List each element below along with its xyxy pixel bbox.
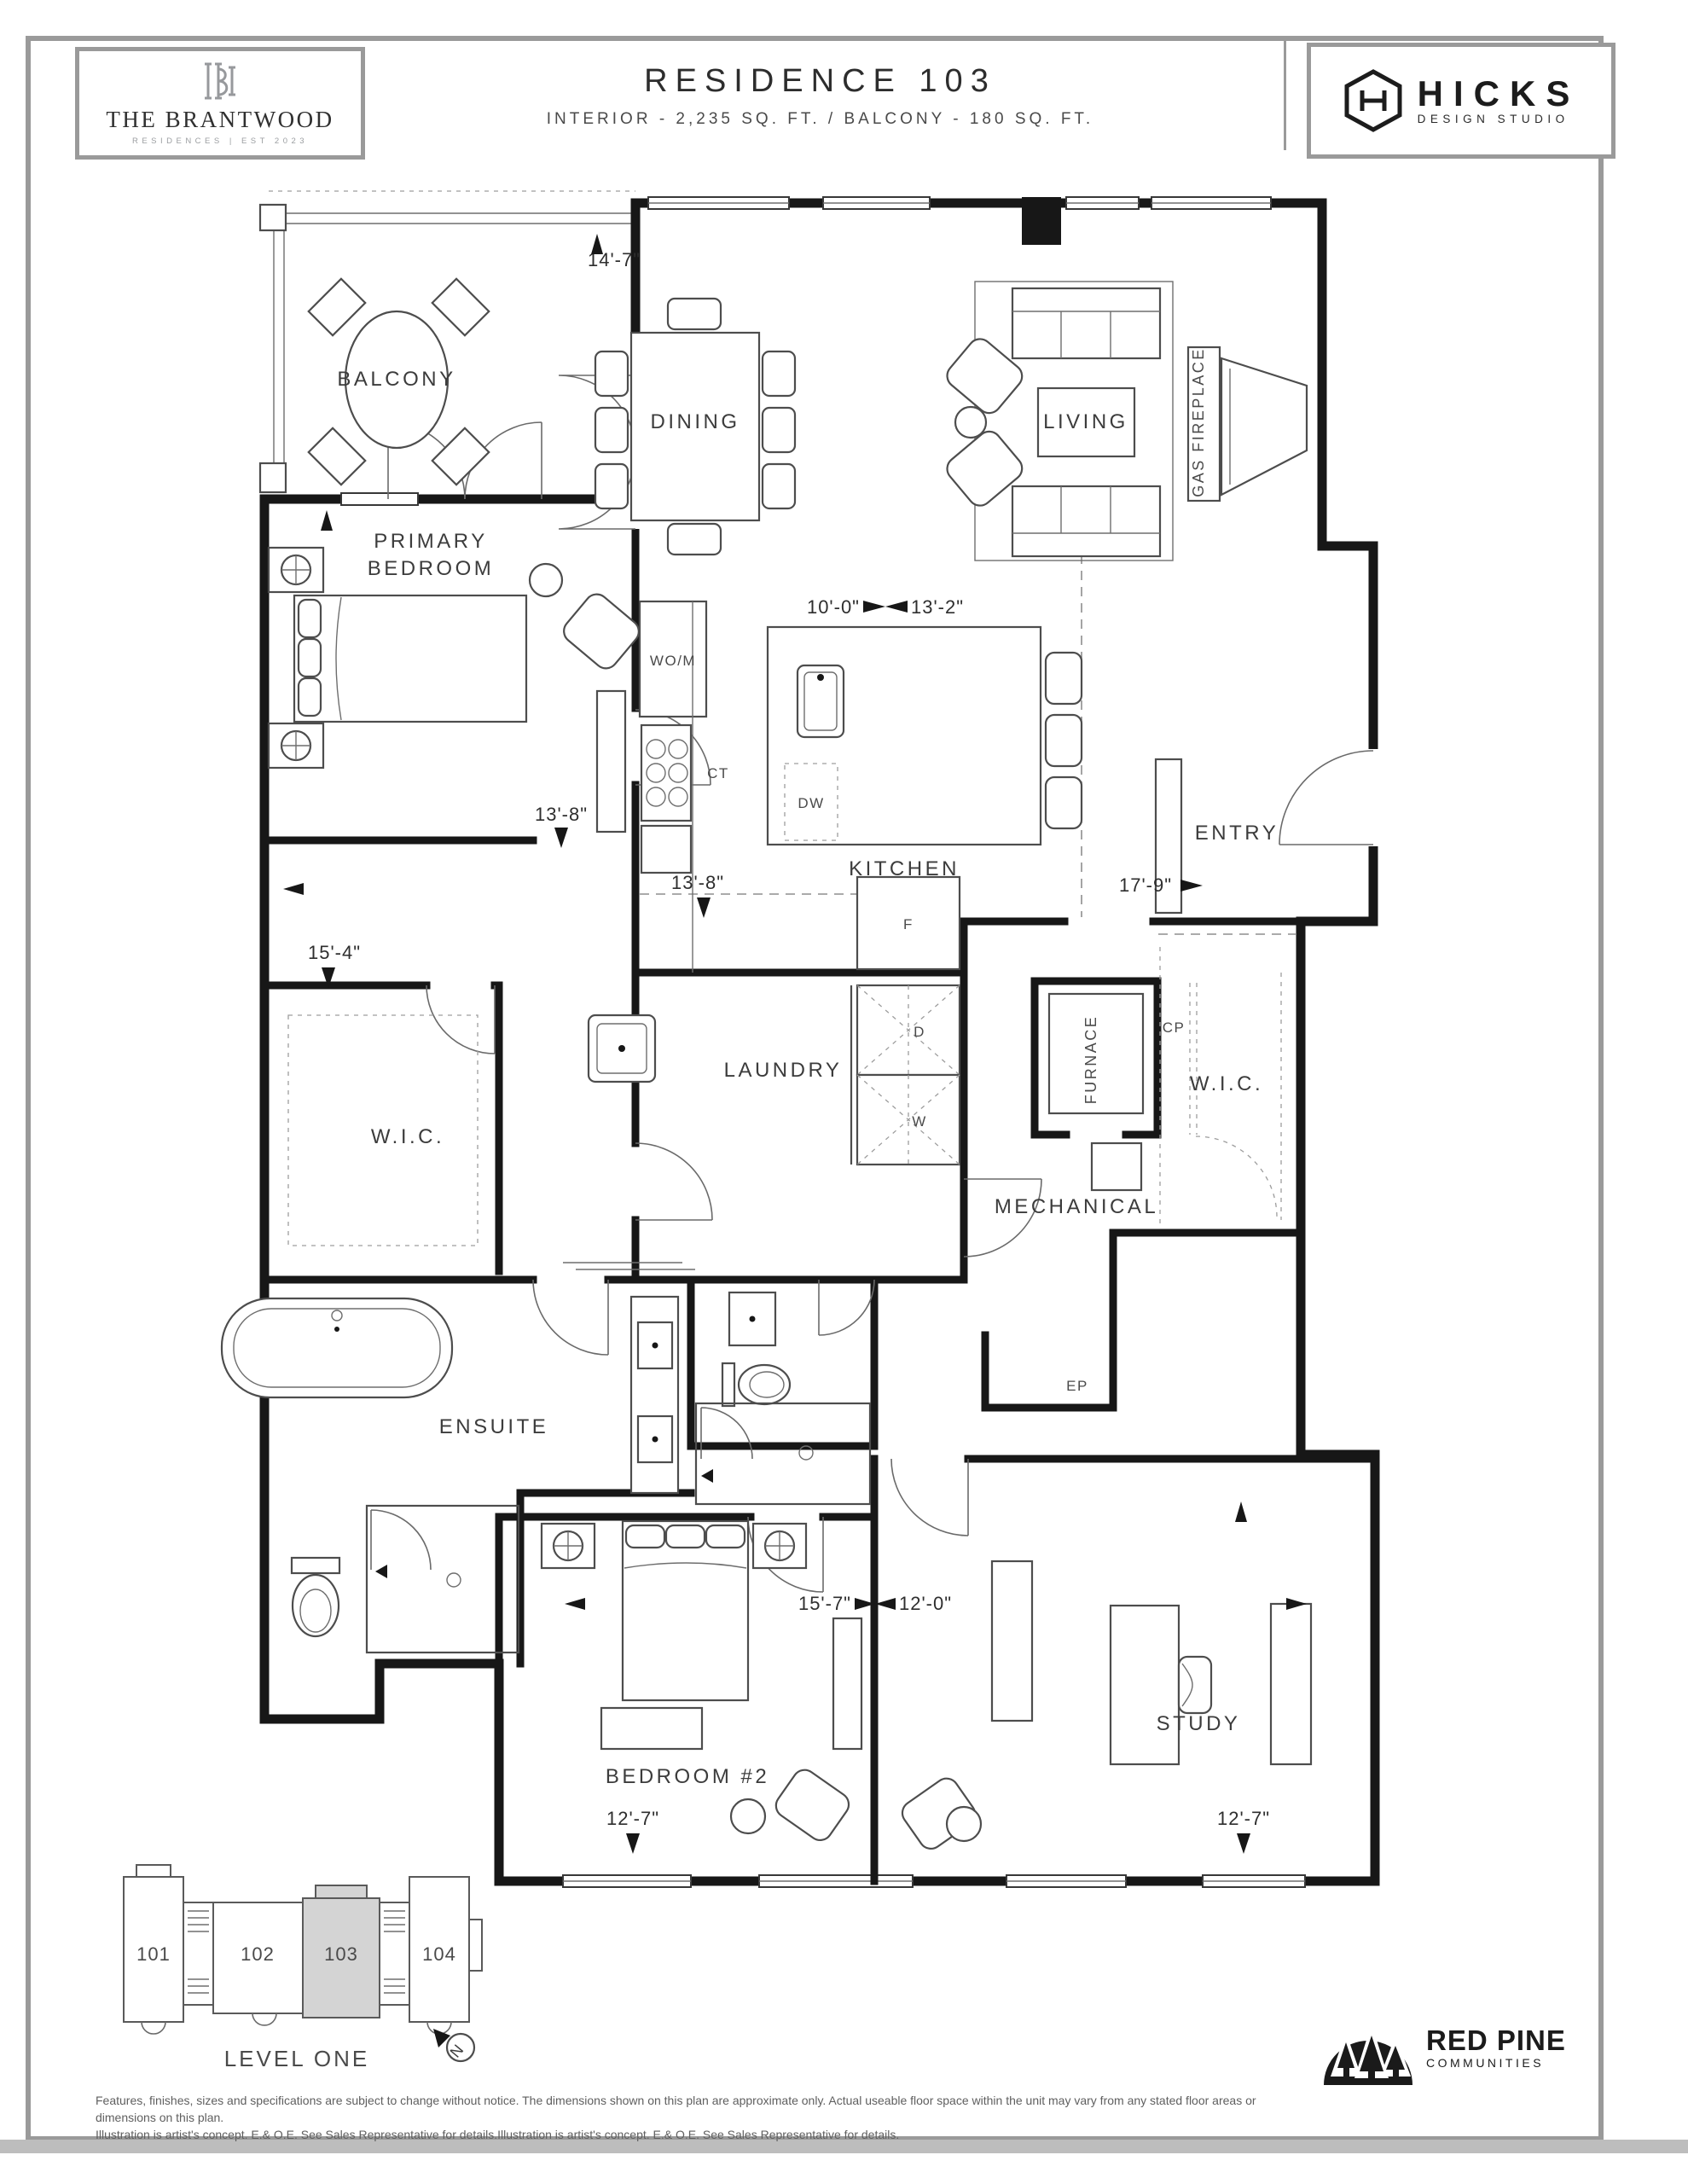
- brand-subtitle: RESIDENCES | EST 2023: [132, 136, 308, 146]
- room-label-wic-left: W.I.C.: [371, 1125, 444, 1148]
- label-cp: CP: [1163, 1019, 1186, 1036]
- hicks-hexagon-icon: [1343, 67, 1404, 134]
- dim-12-0: 12'-0": [899, 1593, 952, 1614]
- label-dishwasher: DW: [798, 795, 824, 811]
- redpine-logo: RED PINE COMMUNITIES: [1320, 2007, 1576, 2090]
- room-label-wic-right: W.I.C.: [1190, 1072, 1263, 1095]
- floorplan-page: THE BRANTWOOD RESIDENCES | EST 2023 RESI…: [0, 0, 1688, 2184]
- room-label-dining: DINING: [651, 410, 740, 433]
- room-label-furnace: FURNACE: [1082, 1015, 1099, 1105]
- redpine-trees-icon: [1320, 2007, 1416, 2090]
- dim-12-7-a: 12'-7": [606, 1808, 659, 1829]
- studio-subtitle: DESIGN STUDIO: [1418, 113, 1581, 125]
- keyplan-unit-101: 101: [136, 1943, 171, 1965]
- disclaimer-text: Features, finishes, sizes and specificat…: [96, 2092, 1290, 2143]
- keyplan-level-label: LEVEL ONE: [224, 2046, 370, 2071]
- keyplan: 101 102 103 104 LEVEL ONE N: [124, 1865, 482, 2071]
- room-label-living: LIVING: [1043, 410, 1128, 433]
- room-label-primary-line1: PRIMARY: [374, 530, 487, 553]
- dim-17-9: 17'-9": [1119, 874, 1172, 896]
- dim-15-4: 15'-4": [308, 942, 361, 963]
- brantwood-monogram-icon: [198, 61, 242, 102]
- ensuite-fixtures: [222, 1297, 678, 1653]
- room-label-mechanical: MECHANICAL: [995, 1195, 1158, 1218]
- dim-12-7-b: 12'-7": [1217, 1808, 1270, 1829]
- brand-name: THE BRANTWOOD: [106, 107, 334, 133]
- bedroom2-furniture: [542, 1521, 861, 1844]
- dim-10-0: 10'-0": [807, 596, 860, 618]
- north-arrow-icon: N: [433, 2029, 474, 2061]
- keyplan-unit-104: 104: [422, 1943, 456, 1965]
- dim-15-7: 15'-7": [798, 1593, 851, 1614]
- room-label-gas-fireplace: GAS FIREPLACE: [1190, 347, 1207, 497]
- label-fridge: F: [903, 916, 914, 932]
- label-washer: W: [912, 1113, 927, 1130]
- door-swings: [388, 375, 1381, 1592]
- north-letter: N: [447, 2042, 467, 2061]
- floorplan-drawing: BALCONY DINING LIVING GAS FIREPLACE PRIM…: [85, 162, 1604, 2073]
- studio-name: HICKS: [1418, 77, 1581, 111]
- label-wall-oven-microwave: WO/M: [650, 653, 696, 669]
- disclaimer-line2: Illustration is artist's concept. E.& O.…: [96, 2126, 1290, 2143]
- dim-13-8-b: 13'-8": [671, 872, 724, 893]
- room-label-primary-line2: BEDROOM: [368, 557, 495, 580]
- hicks-logo-box: HICKS DESIGN STUDIO: [1307, 43, 1615, 159]
- primary-bedroom-furniture: [269, 548, 644, 832]
- label-ep: EP: [1066, 1378, 1088, 1394]
- page-title: RESIDENCE 103: [357, 63, 1284, 100]
- developer-name: RED PINE: [1426, 2028, 1566, 2053]
- page-subtitle: INTERIOR - 2,235 SQ. FT. / BALCONY - 180…: [357, 110, 1284, 129]
- room-label-kitchen: KITCHEN: [849, 857, 960, 880]
- kitchen-island: [768, 627, 1082, 845]
- dim-13-2: 13'-2": [911, 596, 964, 618]
- second-bath-fixtures: [696, 1292, 870, 1504]
- label-dryer: D: [914, 1024, 925, 1040]
- mechanical-panel: [1092, 1143, 1141, 1190]
- dim-13-8-a: 13'-8": [535, 804, 588, 825]
- header-divider: [1284, 38, 1286, 150]
- plan-title-block: RESIDENCE 103 INTERIOR - 2,235 SQ. FT. /…: [357, 51, 1284, 147]
- laundry-fixtures: [563, 985, 960, 1269]
- room-label-bedroom2: BEDROOM #2: [606, 1765, 769, 1788]
- room-label-study: STUDY: [1157, 1712, 1241, 1735]
- room-label-laundry: LAUNDRY: [724, 1059, 843, 1082]
- room-label-ensuite: ENSUITE: [439, 1415, 549, 1438]
- developer-subtitle: COMMUNITIES: [1426, 2056, 1566, 2070]
- room-label-entry: ENTRY: [1195, 822, 1279, 845]
- brantwood-logo-box: THE BRANTWOOD RESIDENCES | EST 2023: [75, 47, 365, 160]
- room-label-balcony: BALCONY: [337, 368, 455, 391]
- keyplan-unit-103: 103: [324, 1943, 358, 1965]
- disclaimer-line1: Features, finishes, sizes and specificat…: [96, 2092, 1290, 2126]
- label-cooktop: CT: [707, 765, 729, 781]
- keyplan-unit-102: 102: [241, 1943, 275, 1965]
